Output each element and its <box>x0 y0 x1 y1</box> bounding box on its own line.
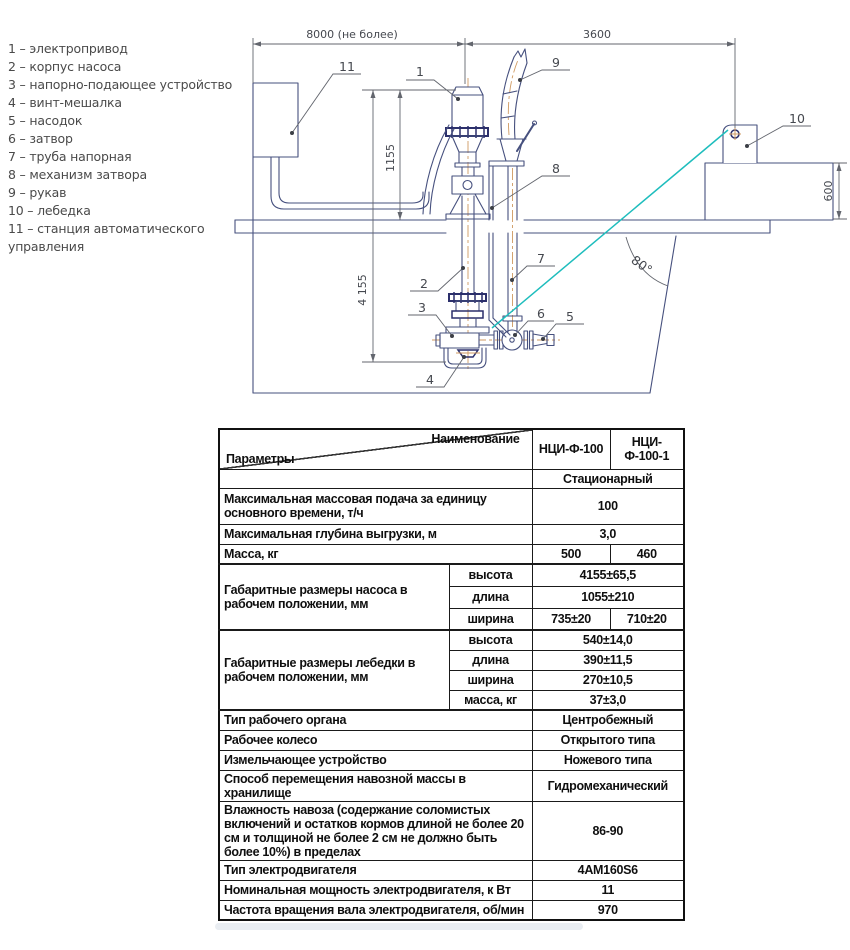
value-winch-width: 270±10,5 <box>532 670 684 690</box>
pump-column-and-casing <box>436 196 554 368</box>
param-power: Номинальная мощность электродвигателя, к… <box>219 880 532 900</box>
param-feed: Максимальная массовая подача за единицу … <box>219 488 532 524</box>
dim-600: 600 <box>822 181 835 202</box>
value-rpm: 970 <box>532 900 684 920</box>
param-mass: Масса, кг <box>219 544 532 564</box>
param-depth: Максимальная глубина выгрузки, м <box>219 524 532 544</box>
value-pump-width-1: 735±20 <box>532 608 610 630</box>
value-mass-2: 460 <box>610 544 684 564</box>
callout-8: 8 <box>490 161 570 210</box>
svg-text:11: 11 <box>339 59 355 74</box>
winch-assembly <box>705 125 833 220</box>
value-method: Гидромеханический <box>532 770 684 801</box>
sublabel-winch-width: ширина <box>449 670 532 690</box>
value-mass-1: 500 <box>532 544 610 564</box>
page-shadow <box>215 923 583 930</box>
callout-9: 9 <box>518 55 570 82</box>
control-station <box>253 83 429 209</box>
param-wheel: Рабочее колесо <box>219 730 532 750</box>
sublabel-pump-height: высота <box>449 564 532 586</box>
svg-text:10: 10 <box>789 111 805 126</box>
value-shredder: Ножевого типа <box>532 750 684 770</box>
value-winch-mass: 37±3,0 <box>532 690 684 710</box>
param-method: Способ перемещения навозной массы в хран… <box>219 770 532 801</box>
value-humidity: 86-90 <box>532 801 684 860</box>
angle-label: 80° <box>629 252 656 277</box>
svg-text:6: 6 <box>537 306 545 321</box>
pit-and-platform <box>235 157 770 393</box>
value-feed: 100 <box>532 488 684 524</box>
svg-text:5: 5 <box>566 309 574 324</box>
value-depth: 3,0 <box>532 524 684 544</box>
wall-angle-annotation: 80° <box>626 237 668 286</box>
value-wheel: Открытого типа <box>532 730 684 750</box>
param-motor-type: Тип электродвигателя <box>219 860 532 880</box>
param-organ: Тип рабочего органа <box>219 710 532 730</box>
sublabel-winch-length: длина <box>449 650 532 670</box>
spec-table: Наименование Параметры НЦИ-Ф-100 НЦИ-Ф-1… <box>218 428 685 921</box>
callout-11: 11 <box>290 59 361 135</box>
column-header-model-2: НЦИ-Ф-100-1 <box>610 429 684 469</box>
installation-schematic: 80° <box>0 0 850 425</box>
param-pump-dims: Габаритные размеры насоса в рабочем поло… <box>219 564 449 630</box>
dim-3600: 3600 <box>583 28 611 41</box>
dim-8000: 8000 (не более) <box>306 28 398 41</box>
type-value: Стационарный <box>532 469 684 488</box>
svg-text:9: 9 <box>552 55 560 70</box>
svg-text:7: 7 <box>537 251 545 266</box>
svg-text:1: 1 <box>416 64 424 79</box>
part-callouts: 1 2 3 4 5 6 7 8 9 10 11 <box>290 55 811 387</box>
dim-4155: 4 155 <box>356 274 369 306</box>
svg-text:3: 3 <box>418 300 426 315</box>
winch-cable <box>492 130 728 328</box>
svg-text:2: 2 <box>420 276 428 291</box>
param-shredder: Измельчающее устройство <box>219 750 532 770</box>
sublabel-pump-length: длина <box>449 586 532 608</box>
value-pump-width-2: 710±20 <box>610 608 684 630</box>
value-pump-height: 4155±65,5 <box>532 564 684 586</box>
empty-cell <box>219 469 532 488</box>
column-header-model-1: НЦИ-Ф-100 <box>532 429 610 469</box>
callout-4: 4 <box>416 355 466 387</box>
svg-text:8: 8 <box>552 161 560 176</box>
value-motor-type: 4АМ160S6 <box>532 860 684 880</box>
param-winch-dims: Габаритные размеры лебедки в рабочем пол… <box>219 630 449 710</box>
sublabel-winch-height: высота <box>449 630 532 650</box>
sublabel-pump-width: ширина <box>449 608 532 630</box>
corner-label-name: Наименование <box>431 432 519 446</box>
corner-label-params: Параметры <box>226 452 294 466</box>
value-winch-height: 540±14,0 <box>532 630 684 650</box>
value-power: 11 <box>532 880 684 900</box>
sublabel-winch-mass: масса, кг <box>449 690 532 710</box>
value-winch-length: 390±11,5 <box>532 650 684 670</box>
dim-1155: 1155 <box>384 144 397 172</box>
table-corner-cell: Наименование Параметры <box>219 429 532 469</box>
param-rpm: Частота вращения вала электродвигателя, … <box>219 900 532 920</box>
value-pump-length: 1055±210 <box>532 586 684 608</box>
callout-3: 3 <box>408 300 454 338</box>
value-organ: Центробежный <box>532 710 684 730</box>
pump-motor-assembly <box>423 87 490 219</box>
callout-2: 2 <box>410 266 465 291</box>
param-humidity: Влажность навоза (содержание соломистых … <box>219 801 532 860</box>
discharge-hose <box>501 49 527 139</box>
svg-text:4: 4 <box>426 372 434 387</box>
